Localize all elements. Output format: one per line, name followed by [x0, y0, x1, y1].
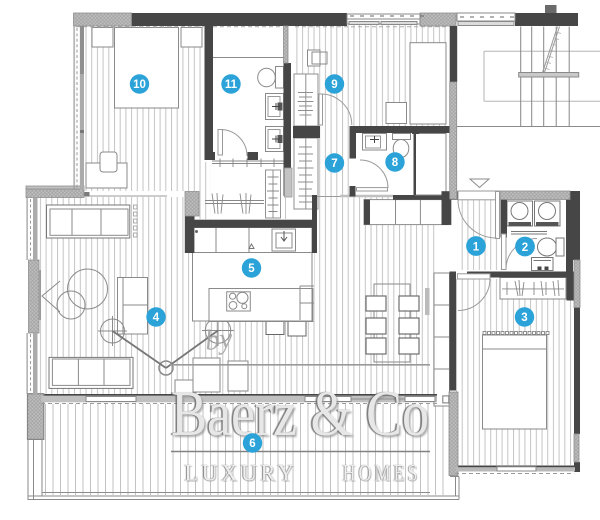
svg-text:LUXURY: LUXURY — [185, 461, 298, 486]
svg-text:4: 4 — [153, 312, 160, 324]
svg-text:8: 8 — [392, 157, 399, 169]
svg-text:5: 5 — [248, 263, 255, 275]
svg-text:3: 3 — [521, 312, 527, 324]
svg-text:10: 10 — [133, 79, 146, 91]
svg-text:HOMES: HOMES — [343, 461, 421, 486]
svg-text:by: by — [203, 322, 234, 357]
svg-text:7: 7 — [331, 158, 337, 170]
svg-text:6: 6 — [249, 438, 255, 450]
svg-text:2: 2 — [522, 242, 528, 254]
svg-text:11: 11 — [225, 79, 238, 91]
svg-text:Baerz & Co: Baerz & Co — [171, 378, 429, 450]
svg-text:9: 9 — [331, 79, 337, 91]
svg-text:1: 1 — [473, 241, 480, 253]
